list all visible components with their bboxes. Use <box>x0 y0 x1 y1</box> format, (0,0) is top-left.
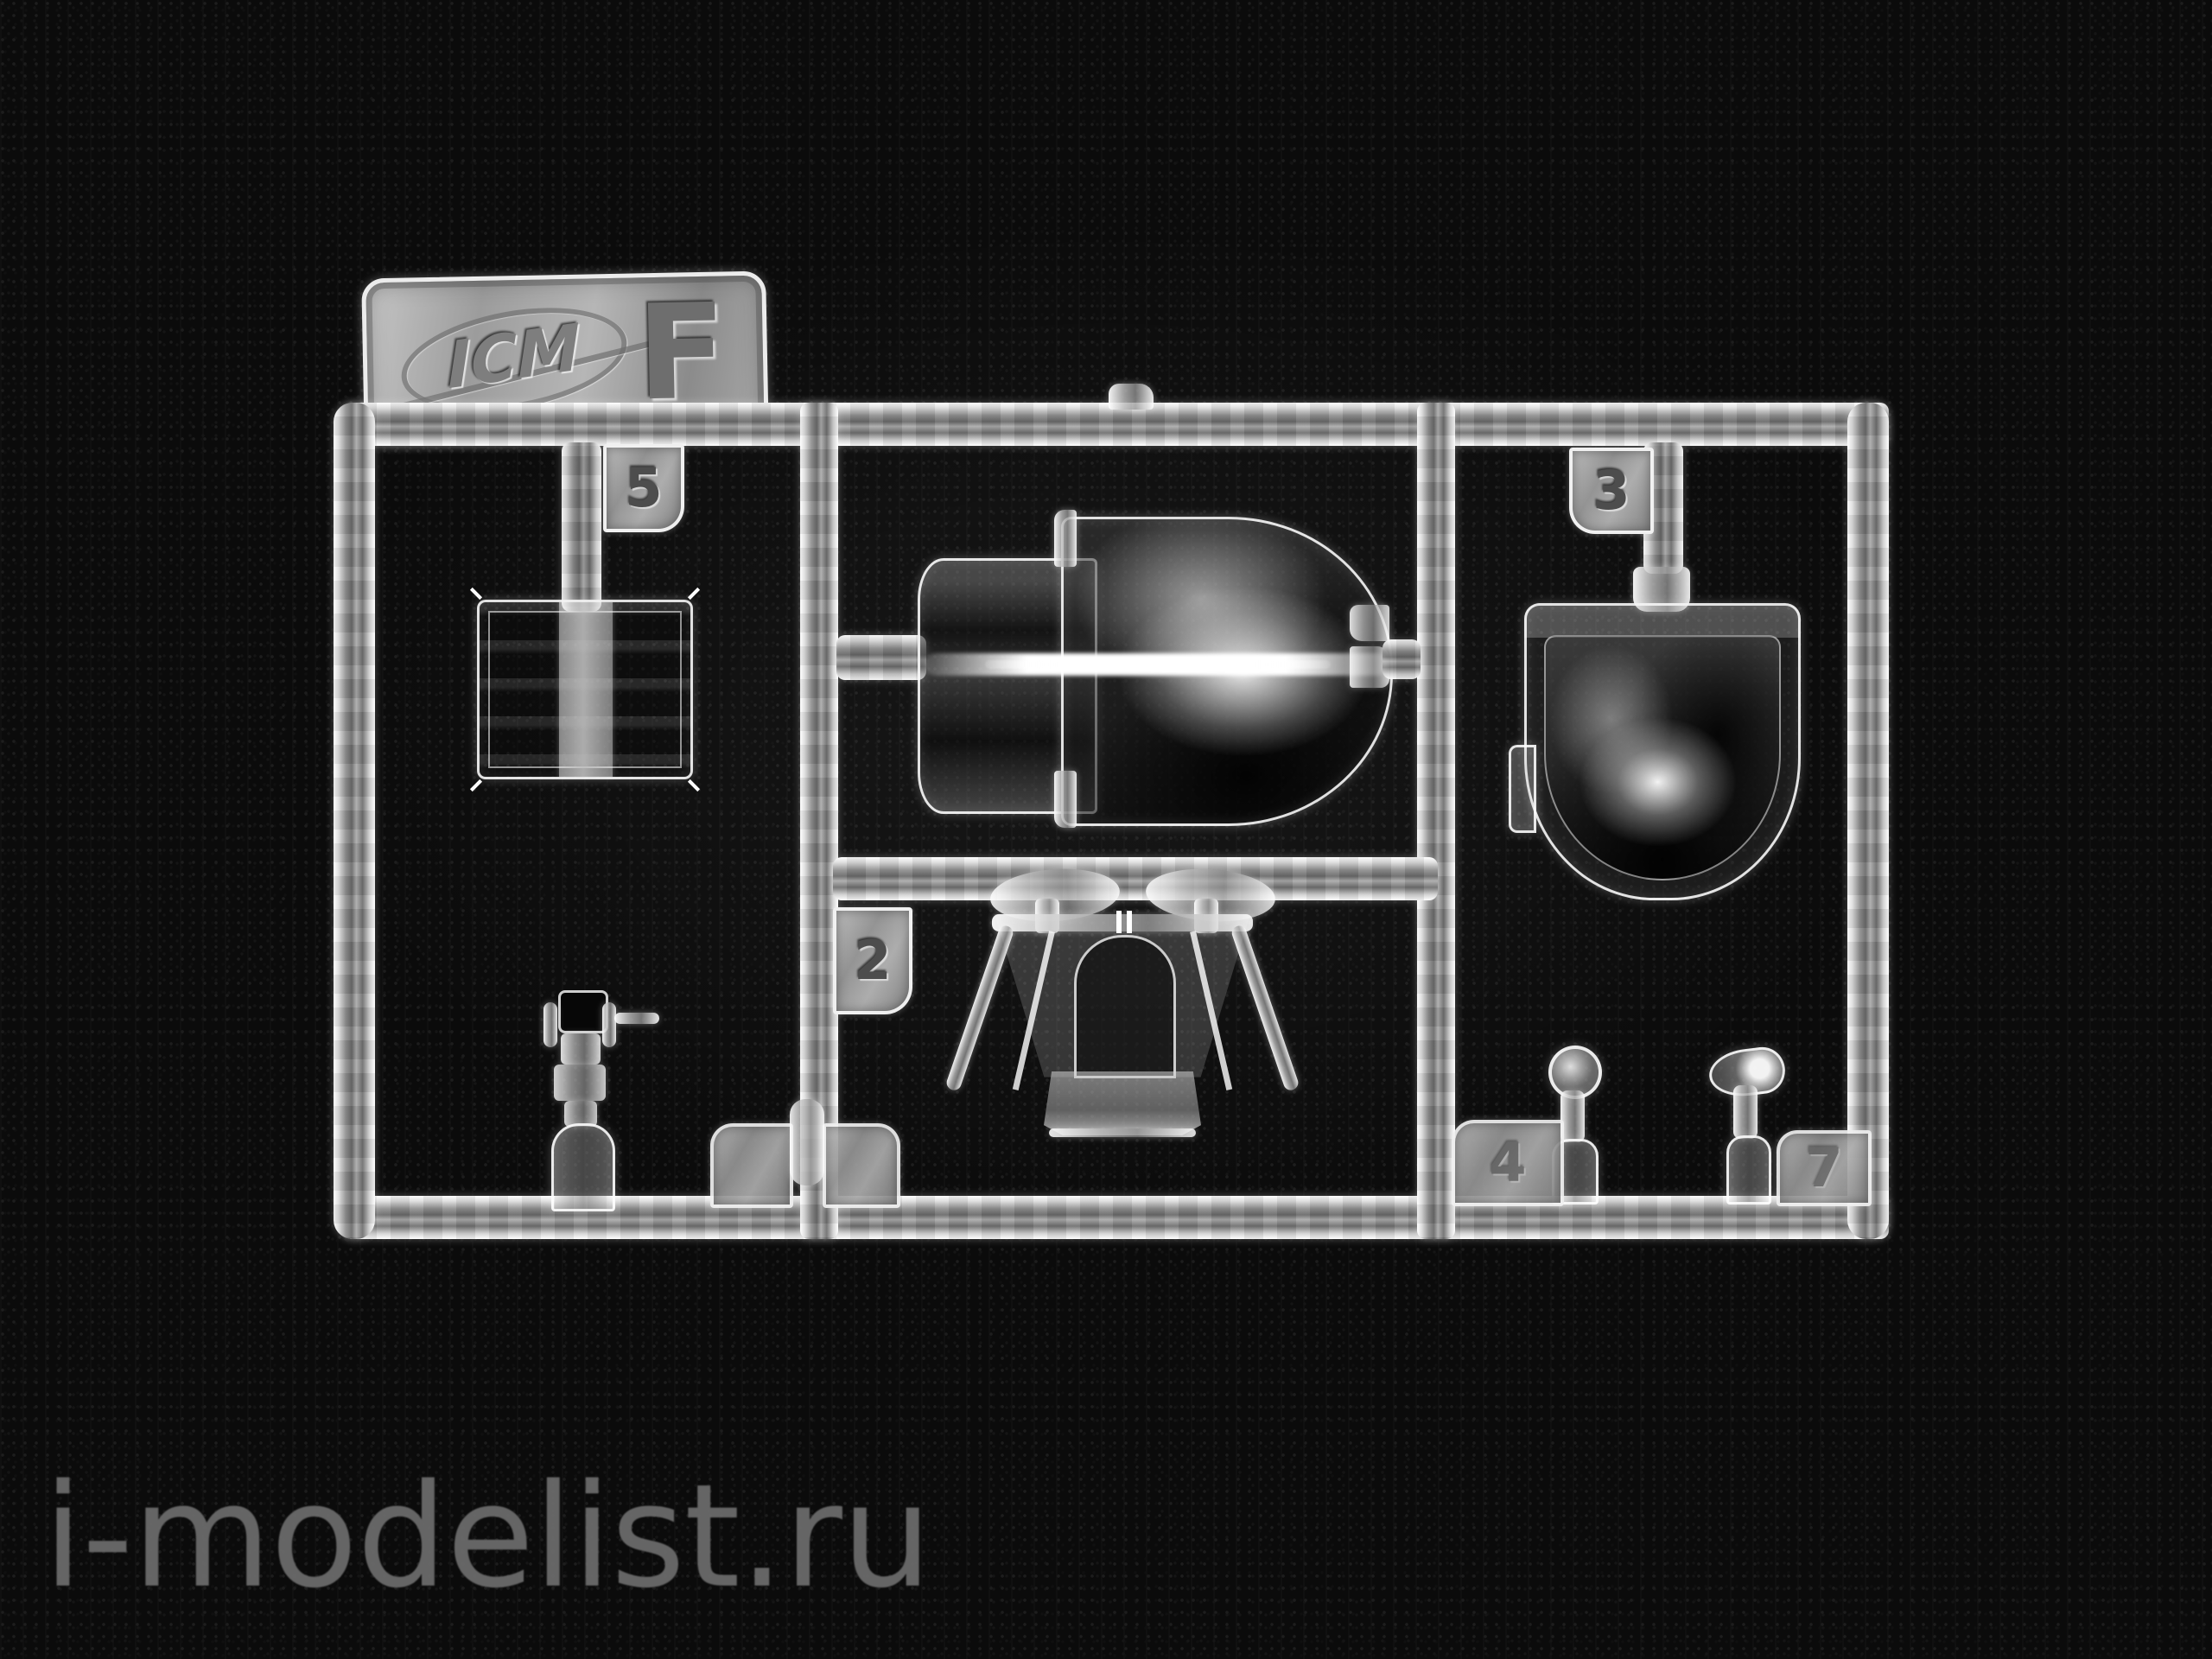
gunsight-side-arm <box>614 1013 659 1024</box>
canopy-specular-core <box>985 660 1331 669</box>
windscreen-top-frame <box>992 914 1253 931</box>
tag-part3: 3 <box>1569 448 1654 534</box>
gunsight-body-block2 <box>554 1065 606 1101</box>
photo-stage: i-modelist.ru ICM F 5 <box>0 0 2212 1659</box>
part6-gunsight <box>531 985 661 1205</box>
gunsight-bracket-left <box>543 1002 557 1047</box>
tag-worn-left <box>710 1123 793 1208</box>
tag-part3-number: 3 <box>1592 464 1630 518</box>
part3-canopy-dome <box>1524 603 1801 900</box>
windscreen-top-notch <box>1127 911 1132 933</box>
icm-logo-text: ICM <box>446 315 582 398</box>
divider-gate-blob <box>790 1099 824 1185</box>
tag-part4-number: 4 <box>1489 1136 1526 1190</box>
gunsight-reflector-dark <box>558 990 608 1033</box>
runner-left-rail <box>334 403 375 1239</box>
tag-part4: 4 <box>1452 1120 1564 1206</box>
dome-right-tab-top <box>1350 605 1389 641</box>
tag-part5-number: 5 <box>625 461 662 515</box>
windscreen-skirt-rim <box>1049 1128 1196 1137</box>
windscreen-side-tube-right <box>1230 924 1300 1092</box>
gate-canopy-left <box>836 635 926 680</box>
runner-divider-right <box>1417 403 1455 1239</box>
runner-windscreen <box>833 857 1438 900</box>
gunsight-foot-arch <box>551 1123 615 1211</box>
sprue: ICM F 5 <box>0 0 2212 1659</box>
tag-part2-number: 2 <box>854 934 891 988</box>
part7-foot <box>1726 1135 1771 1205</box>
part3-left-tab <box>1509 745 1536 833</box>
part3-inner-dome <box>1544 635 1781 880</box>
gunsight-bracket-right <box>602 1002 616 1047</box>
tag-part2: 2 <box>833 907 912 1014</box>
sprue-letter-f: F <box>636 283 728 423</box>
dome-left-flange-top <box>1054 510 1077 567</box>
part5-frosted-band <box>559 602 613 777</box>
part2-windscreen <box>992 914 1253 1141</box>
gunsight-body-block1 <box>561 1033 601 1065</box>
dome-left-flange-bottom <box>1054 771 1077 828</box>
windscreen-arch-window <box>1074 935 1176 1078</box>
windscreen-top-notch <box>1116 911 1122 933</box>
part5-corner-prong <box>470 588 482 600</box>
tag-worn-right <box>823 1123 900 1208</box>
gate-stalk-part5 <box>562 442 601 612</box>
injection-gate-nub <box>1109 384 1154 410</box>
part4-stalk <box>1560 1090 1585 1142</box>
windscreen-side-tube-left <box>944 924 1014 1092</box>
part5-corner-prong <box>688 588 700 600</box>
part5-corner-prong <box>470 779 482 791</box>
tag-part7-number: 7 <box>1805 1141 1842 1195</box>
tag-part7: 7 <box>1777 1130 1872 1206</box>
part5-canopy-section <box>477 600 693 779</box>
tag-part5: 5 <box>603 444 684 532</box>
runner-right-rail <box>1847 403 1889 1239</box>
windscreen-skirt <box>1044 1071 1201 1135</box>
part5-corner-prong <box>688 779 700 791</box>
part7-stalk <box>1733 1085 1758 1139</box>
gate-canopy-right <box>1382 639 1421 679</box>
